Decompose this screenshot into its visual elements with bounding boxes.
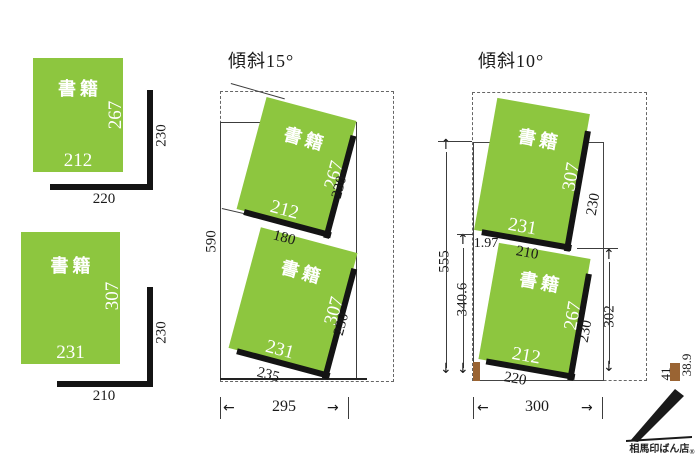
dim-arrow-right-icon: → <box>327 401 339 415</box>
dim-tick <box>473 397 474 419</box>
case-floor-line <box>220 378 367 380</box>
dim-arrow-up-icon: ↑ <box>457 233 469 247</box>
book-top-flat: 書籍 267 212 <box>33 58 123 172</box>
legend-dim-b: 38.9 <box>679 343 695 387</box>
bracket-horizontal-arm <box>57 381 153 387</box>
case-width-dim: 300 <box>493 398 581 416</box>
bracket-width-dim: 220 <box>82 191 126 208</box>
dim-arrow-down-icon: ↓ <box>440 362 452 376</box>
book-zone-height-dim: 302 <box>602 295 619 339</box>
bracket-vertical-arm <box>147 90 153 190</box>
dim-tick <box>438 141 472 142</box>
pen-nib-icon <box>622 384 698 448</box>
bracket-height-dim: 230 <box>154 116 171 156</box>
bracket-horizontal-arm <box>50 184 153 190</box>
book-label: 書籍 <box>489 118 586 160</box>
bracket-vertical-arm <box>147 287 153 387</box>
case-right-line <box>356 122 357 380</box>
dim-tick <box>348 397 349 419</box>
dim-arrow-down-icon: ↓ <box>457 362 469 376</box>
dim-arrow-left-icon: ← <box>223 401 235 415</box>
dim-tick <box>220 397 221 419</box>
bracket-width-dim: 210 <box>82 388 126 405</box>
dim-arrow-up-icon: ↑ <box>603 248 615 262</box>
dim-arrow-left-icon: ← <box>477 401 489 415</box>
case-height-dim: 590 <box>204 220 221 264</box>
book-width-dim: 231 <box>21 342 120 364</box>
tilt10-title: 傾斜10° <box>478 47 544 73</box>
case-height-dim: 555 <box>437 240 454 284</box>
book-spine-dim: 267 <box>105 93 123 137</box>
dim-line <box>463 248 464 368</box>
shop-logo-text: 相馬印ばん店 <box>629 444 689 455</box>
dim-arrow-down-icon: ↓ <box>603 360 615 374</box>
case-width-dim: 295 <box>240 398 328 416</box>
dim-tick <box>457 234 473 235</box>
shop-logo: 相馬印ばん店® <box>624 440 700 456</box>
bracket-height-dim: 230 <box>154 313 171 353</box>
book-spine-dim: 307 <box>102 274 120 318</box>
dim-arrow-right-icon: → <box>581 401 593 415</box>
book-bottom-flat: 書籍 307 231 <box>21 232 120 364</box>
dim-line <box>609 262 610 364</box>
case-top-line <box>220 122 262 123</box>
top-offset-dim: 1.97 <box>468 236 504 252</box>
tilt15-title: 傾斜15° <box>228 47 294 73</box>
legend-block-swatch <box>670 363 680 381</box>
book-width-dim: 212 <box>33 150 123 172</box>
dim-line <box>446 152 447 368</box>
dim-tick <box>577 248 618 249</box>
shelf-tilt-diagram: 書籍 267 212 230 220 書籍 307 231 230 210 傾斜… <box>0 0 700 460</box>
dim-tick <box>602 397 603 419</box>
registered-mark-icon: ® <box>689 448 694 456</box>
base-stop-block <box>473 362 480 381</box>
